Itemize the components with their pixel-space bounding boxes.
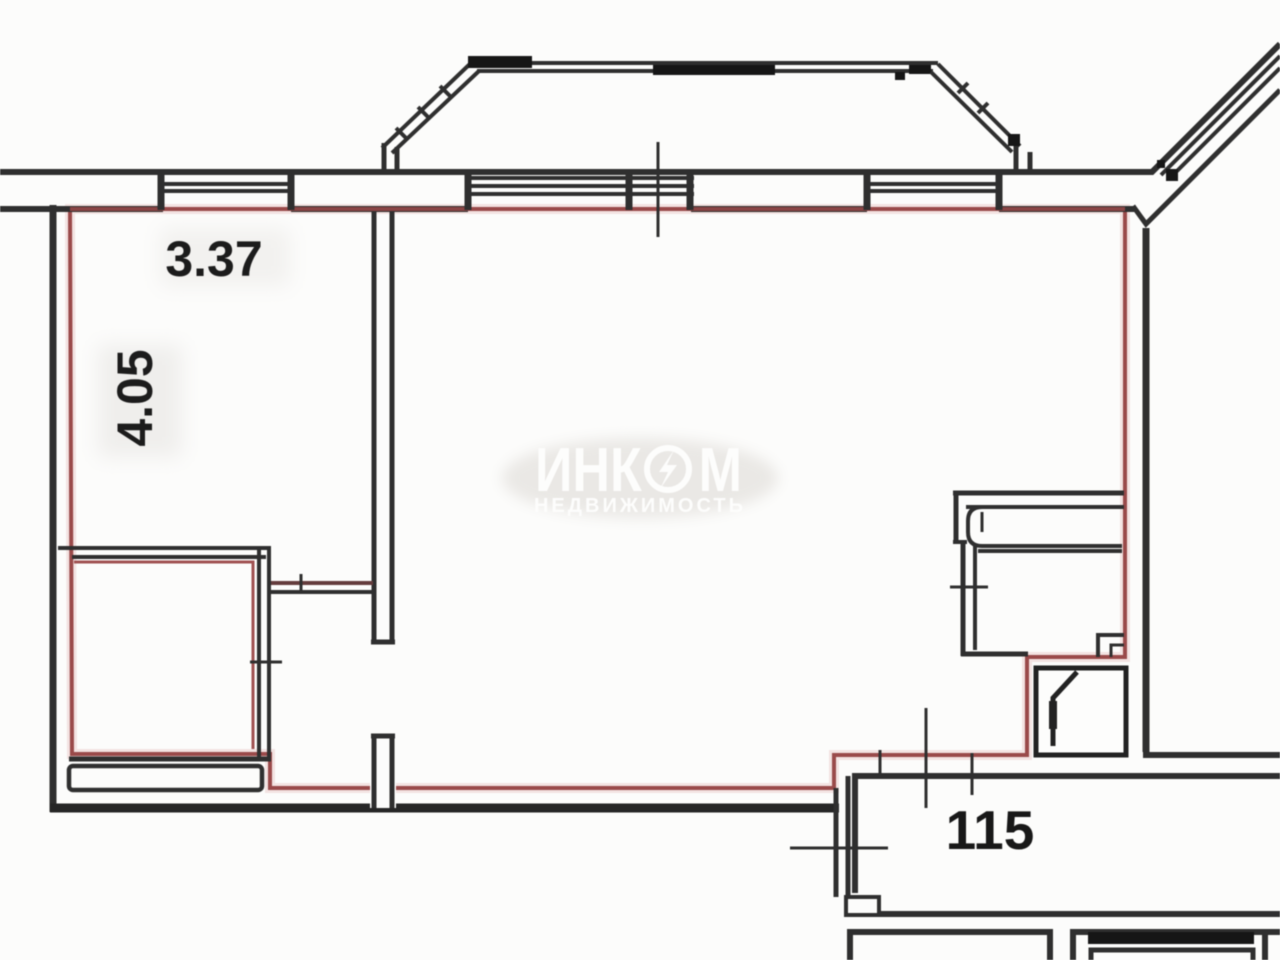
svg-text:НЕДВИЖИМОСТЬ: НЕДВИЖИМОСТЬ — [534, 495, 746, 517]
svg-text:115: 115 — [946, 799, 1035, 861]
svg-text:3.37: 3.37 — [165, 231, 262, 287]
svg-text:4.05: 4.05 — [107, 349, 163, 446]
